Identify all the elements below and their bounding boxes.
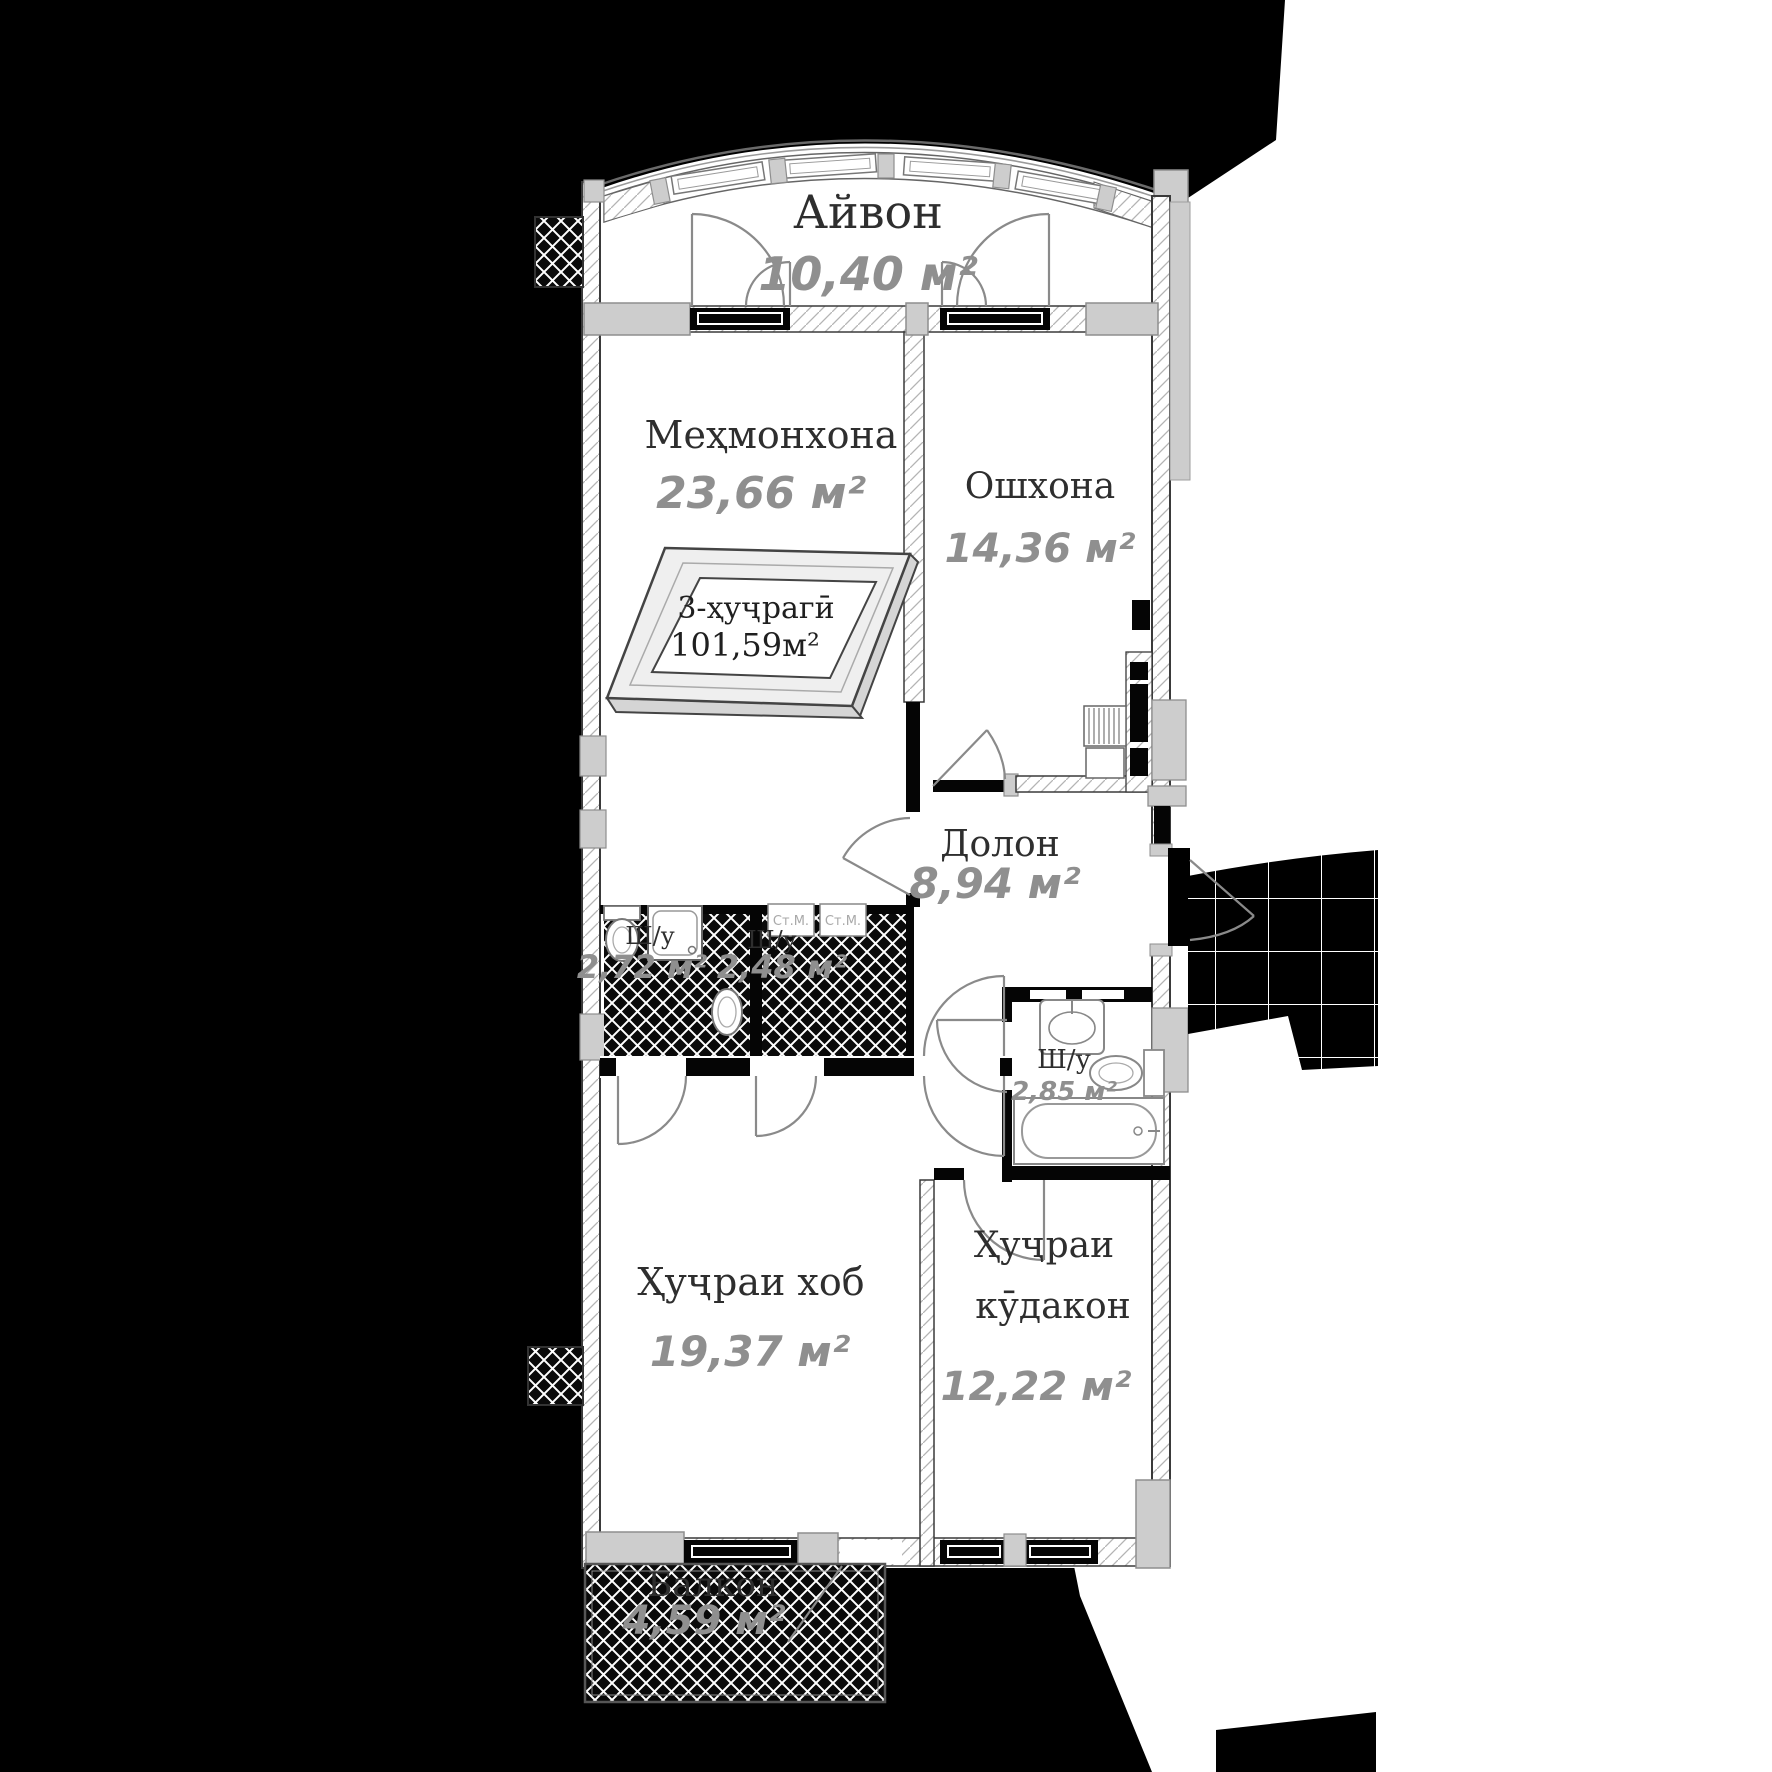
pier xyxy=(580,736,606,776)
french-door-threshold-right xyxy=(940,308,1050,330)
room-area-bedroom: 19,37 м² xyxy=(650,1327,851,1376)
pier xyxy=(906,303,928,335)
room-area-bath1: 2,72 м² xyxy=(577,948,707,986)
bedroom-kids-wall xyxy=(920,1180,934,1566)
french-door-threshold-left xyxy=(690,308,790,330)
room-label-veranda: Айвон xyxy=(793,185,943,239)
room-label-kitchen: Ошхона xyxy=(965,466,1115,507)
room-area-bath2: 2,48 м² xyxy=(717,948,847,986)
wall-seg xyxy=(1000,1058,1012,1076)
vent-slot xyxy=(1082,990,1124,999)
wall-seg xyxy=(600,1058,616,1076)
pier xyxy=(1148,786,1186,806)
room-label-bath3: Ш/у xyxy=(1037,1045,1091,1075)
room-label-bedroom: Ҳуҷраи хоб xyxy=(637,1260,864,1304)
pier xyxy=(584,180,604,202)
room-area-bath3: 2,85 м² xyxy=(1011,1077,1117,1107)
bath-bottom-band xyxy=(600,1056,1014,1078)
room-label-living: Меҳмонхона xyxy=(645,413,898,457)
washer-label-2: Ст.М. xyxy=(825,914,861,929)
column xyxy=(586,1532,684,1566)
right-facade-band xyxy=(1170,202,1190,480)
wall-seg xyxy=(824,1058,914,1076)
room-area-kitchen: 14,36 м² xyxy=(945,526,1136,572)
pier xyxy=(1004,1534,1026,1566)
kids-top-wall xyxy=(1044,1168,1154,1180)
living-hall-wall-upper xyxy=(906,702,920,812)
room-label-bath1: Ш/у xyxy=(625,922,675,950)
radiator-fixture xyxy=(1084,706,1126,778)
sink-fixture xyxy=(712,989,742,1035)
room-area-kids: 12,22 м² xyxy=(941,1364,1132,1410)
column xyxy=(1136,1480,1170,1568)
column xyxy=(584,303,690,335)
black-left-band xyxy=(0,0,600,1772)
window-bedroom xyxy=(684,1540,798,1564)
wall-seg xyxy=(1154,806,1170,848)
room-area-balcony: 4,59 м² xyxy=(622,1598,786,1644)
bath2-right-wall xyxy=(906,913,914,1059)
room-area-living: 23,66 м² xyxy=(656,468,866,519)
wall-seg xyxy=(686,1058,750,1076)
left-exterior-wall xyxy=(582,182,600,1568)
room-area-hall: 8,94 м² xyxy=(910,859,1082,908)
floorplan-drawing: Айвон 10,40 м² Меҳмонхона 23,66 м² Ошхон… xyxy=(0,0,1772,1772)
pier xyxy=(798,1533,838,1566)
bathtub-fixture xyxy=(1014,1098,1164,1164)
vent-shaft xyxy=(1130,662,1148,680)
adjacent-structure-block xyxy=(528,1347,583,1405)
vent-slot xyxy=(1030,990,1066,999)
adjacent-structure-block xyxy=(535,217,583,287)
balcony-door-opening xyxy=(840,1540,902,1564)
vent-shaft xyxy=(1130,684,1148,742)
summary-total-area: 101,59м² xyxy=(670,626,820,664)
kitchen-hall-threshold xyxy=(933,780,1006,792)
entry-void xyxy=(1168,848,1190,946)
vent-shaft xyxy=(1130,748,1148,776)
room-label-kids-2: кӯдакон xyxy=(975,1286,1130,1327)
kids-top-wall xyxy=(934,1168,964,1180)
column xyxy=(1086,303,1158,335)
floorplan-canvas: Айвон 10,40 м² Меҳмонхона 23,66 м² Ошхон… xyxy=(0,0,1772,1772)
washer-label-1: Ст.М. xyxy=(773,914,809,929)
pier xyxy=(580,1014,606,1060)
room-label-kids-1: Ҳуҷраи xyxy=(974,1225,1114,1266)
vent-shaft xyxy=(1132,600,1150,630)
pier xyxy=(580,810,606,848)
column xyxy=(1152,700,1186,780)
room-area-veranda: 10,40 м² xyxy=(758,247,977,301)
summary-type-label: 3-ҳуҷрагӣ xyxy=(677,591,834,626)
living-kitchen-wall xyxy=(904,332,924,702)
